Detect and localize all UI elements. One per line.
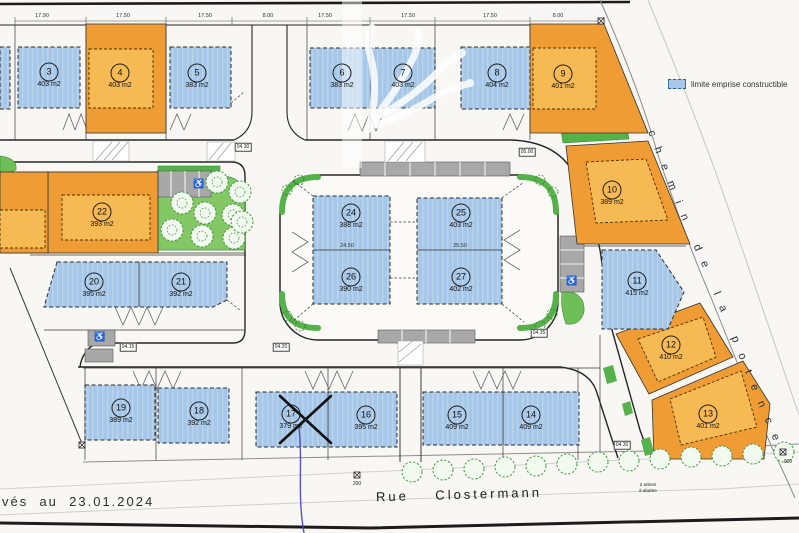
lot-number-circle: 18 — [190, 402, 209, 421]
lot-area-label: 392 m2 — [187, 420, 210, 427]
lot-area-label: 393 m2 — [90, 221, 113, 228]
dimension-label: 8.00 — [553, 13, 564, 19]
dimension-label: 17.90 — [35, 13, 49, 19]
legend-swatch-icon — [668, 79, 686, 89]
lot-number-circle: 19 — [112, 399, 131, 418]
trees-to-fell-note: 2 arbres à abattre — [639, 482, 657, 493]
lot-area-label: 401 m2 — [696, 423, 719, 430]
legend-label: limite emprise constructible — [691, 80, 787, 89]
lot-number-circle: 3 — [40, 63, 59, 82]
lot-number-circle: 4 — [111, 64, 130, 83]
lot-number-circle: 9 — [554, 65, 573, 84]
lot-number-circle: 16 — [357, 406, 376, 425]
lot-number-circle: 27 — [452, 268, 471, 287]
lot-area-label: 390 m2 — [339, 286, 362, 293]
lot-number-circle: 17 — [282, 405, 301, 424]
lot-area-label: 403 m2 — [108, 82, 131, 89]
lot-number-circle: 20 — [85, 273, 104, 292]
lot-area-label: 395 m2 — [354, 424, 377, 431]
lot-area-label: 415 m2 — [625, 290, 648, 297]
lot-area-label: 401 m2 — [551, 83, 574, 90]
label-layer: limite emprise constructible Rue Closter… — [0, 0, 799, 533]
dimension-label: 17.50 — [318, 13, 332, 19]
dimension-label: 8.00 — [263, 13, 274, 19]
lot-area-label: 410 m2 — [659, 354, 682, 361]
lot-number-circle: 22 — [93, 203, 112, 222]
lot-area-label: 403 m2 — [391, 82, 414, 89]
elevation-marker: 04.20 — [273, 343, 290, 352]
lot-area-label: 403 m2 — [37, 81, 60, 88]
lot-area-label: 409 m2 — [445, 424, 468, 431]
rue-clostermann-street-name: Rue Clostermann — [376, 485, 542, 505]
lot-number-circle: 12 — [662, 336, 681, 355]
elevation-marker: 04.30 — [235, 143, 252, 152]
lot-number-circle: 24 — [342, 204, 361, 223]
subdivision-plan: chemin de la potence limite emprise cons… — [0, 0, 799, 533]
lot-area-label: 404 m2 — [485, 82, 508, 89]
lot-area-label: 402 m2 — [449, 286, 472, 293]
lot-number-circle: 10 — [603, 181, 622, 200]
dimension-label: 17.50 — [116, 13, 130, 19]
dimension-label: 17.50 — [483, 13, 497, 19]
survey-date-note: vés au 23.01.2024 — [2, 494, 154, 509]
lot-area-label: 395 m2 — [82, 291, 105, 298]
accessible-parking-icon: ♿ — [193, 180, 204, 189]
lot-area-label: 392 m2 — [169, 291, 192, 298]
lot-number-circle: 13 — [699, 405, 718, 424]
lot-number-circle: 21 — [172, 273, 191, 292]
lot-number-circle: 5 — [188, 64, 207, 83]
lot-number-circle: 25 — [452, 204, 471, 223]
legend: limite emprise constructible — [668, 79, 787, 89]
lot-number-circle: 14 — [522, 406, 541, 425]
dimension-label: 17.50 — [401, 13, 415, 19]
lot-number-circle: 15 — [448, 406, 467, 425]
lot-area-label: 388 m2 — [339, 222, 362, 229]
elevation-marker: 200 — [352, 481, 362, 488]
elevation-marker: 04.35 — [531, 329, 548, 338]
accessible-parking-icon: ♿ — [94, 333, 105, 342]
elevation-marker: 04.15 — [120, 343, 137, 352]
lot-area-label: 379 m2 — [279, 423, 302, 430]
lot-area-label: 389 m2 — [109, 417, 132, 424]
lot-area-label: 383 m2 — [330, 82, 353, 89]
lot-number-circle: 8 — [488, 64, 507, 83]
dimension-label: 24.50 — [340, 243, 354, 249]
dimension-label: 17.50 — [198, 13, 212, 19]
lot-number-circle: 7 — [394, 64, 413, 83]
lot-number-circle: 11 — [628, 272, 647, 291]
lot-area-label: 403 m2 — [449, 222, 472, 229]
dimension-label: 25.50 — [453, 243, 467, 249]
lot-number-circle: 26 — [342, 268, 361, 287]
lot-number-circle: 6 — [333, 64, 352, 83]
elevation-marker: 900 — [783, 459, 793, 466]
lot-area-label: 389 m2 — [600, 199, 623, 206]
lot-area-label: 383 m2 — [185, 82, 208, 89]
elevation-marker: 04.30 — [614, 441, 631, 450]
elevation-marker: 05.00 — [519, 148, 536, 157]
lot-area-label: 409 m2 — [519, 424, 542, 431]
accessible-parking-icon: ♿ — [566, 277, 577, 286]
